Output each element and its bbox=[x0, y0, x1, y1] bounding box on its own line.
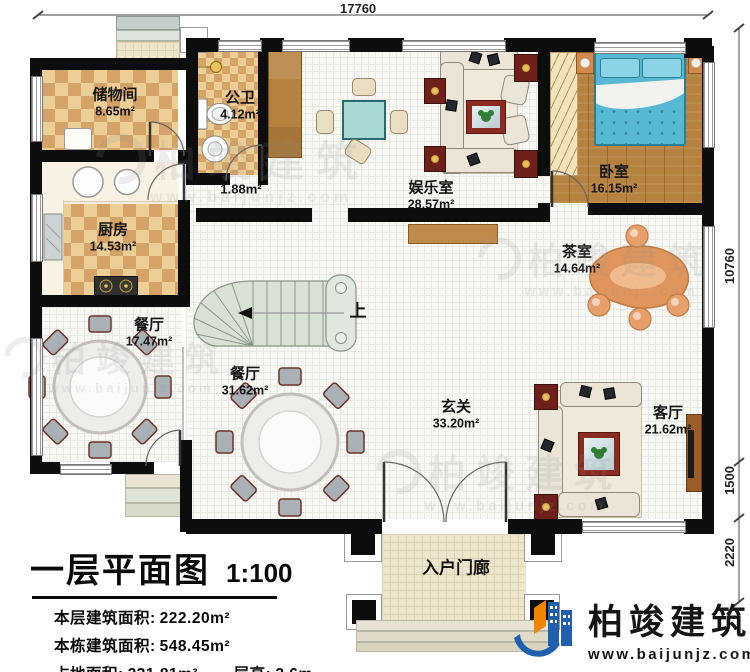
room-name: 客厅 bbox=[645, 406, 692, 423]
wall-segment bbox=[684, 519, 712, 534]
floor-plan-canvas: 储物间 8.65m² 公卫 4.12m² 厨房 14.53m² 娱乐室 28.5… bbox=[0, 0, 750, 672]
room-name: 入户门廊 bbox=[422, 558, 490, 577]
ent-end-table-4 bbox=[514, 150, 538, 178]
room-name: 餐厅 bbox=[222, 367, 269, 384]
window bbox=[31, 76, 43, 142]
wall-segment bbox=[30, 150, 154, 162]
area-total-value: 548.45m² bbox=[160, 638, 230, 655]
sofa-pillow bbox=[603, 387, 616, 400]
company-logo-icon bbox=[504, 592, 582, 664]
wall-segment bbox=[504, 38, 596, 52]
window bbox=[31, 338, 43, 456]
room-name: 娱乐室 bbox=[408, 181, 455, 198]
dimension-right-mid: 1500 bbox=[722, 466, 737, 495]
kitchen-counter-left bbox=[42, 200, 64, 296]
window bbox=[31, 194, 43, 262]
stove bbox=[94, 276, 138, 297]
window bbox=[218, 40, 262, 52]
game-chair-north bbox=[352, 78, 376, 96]
room-name: 卧室 bbox=[591, 165, 638, 182]
ent-end-table-3 bbox=[514, 54, 538, 82]
area-total-row: 本栋建筑面积:548.45m² bbox=[54, 634, 313, 656]
stairs-up-label: 上 bbox=[350, 301, 367, 320]
room-label-dining-west: 餐厅 17.47m² bbox=[126, 318, 173, 349]
dimension-top: 17760 bbox=[340, 1, 376, 16]
plan-scale: 1:100 bbox=[226, 558, 293, 588]
room-name: 茶室 bbox=[554, 245, 601, 262]
living-end-table-1 bbox=[534, 384, 558, 410]
porch-column bbox=[531, 531, 555, 555]
room-area: 16.15m² bbox=[591, 181, 638, 195]
room-name: 餐厅 bbox=[126, 318, 173, 335]
floor-height-value: 3.6m bbox=[275, 666, 312, 672]
window bbox=[402, 40, 506, 52]
wall-segment bbox=[186, 519, 382, 534]
exterior-bay-top bbox=[116, 16, 180, 30]
dimension-right-bottom: 2220 bbox=[722, 538, 737, 567]
corridor-area-label: 1.88m² bbox=[220, 183, 261, 198]
ent-end-table-1 bbox=[424, 78, 446, 104]
pillow-left bbox=[600, 58, 640, 78]
living-end-table-2 bbox=[534, 494, 558, 520]
pillow-right bbox=[642, 58, 682, 78]
bed-quilt-dots bbox=[596, 106, 686, 146]
plan-title: 一层平面图 bbox=[30, 552, 210, 590]
wall-segment bbox=[538, 52, 550, 176]
wardrobe bbox=[550, 52, 578, 176]
room-label-storage: 储物间 8.65m² bbox=[92, 88, 137, 119]
room-area: 33.20m² bbox=[433, 416, 480, 430]
company-website: www.baijunjz.com bbox=[588, 646, 750, 663]
wall-segment bbox=[588, 203, 712, 215]
area-floor-value: 222.20m² bbox=[160, 610, 230, 627]
window bbox=[60, 464, 112, 475]
area-floor-row: 本层建筑面积:222.20m² bbox=[54, 606, 313, 628]
tv-screen bbox=[688, 430, 694, 478]
room-area: 17.47m² bbox=[126, 334, 173, 348]
company-name: 柏竣建筑 bbox=[588, 594, 750, 645]
wall-segment bbox=[538, 203, 550, 222]
window bbox=[703, 62, 715, 148]
wall-segment bbox=[508, 519, 582, 534]
room-label-bedroom: 卧室 16.15m² bbox=[591, 165, 638, 196]
room-label-entertainment: 娱乐室 28.57m² bbox=[408, 181, 455, 212]
room-area: 21.62m² bbox=[645, 422, 692, 436]
ent-coffee-table-glass bbox=[472, 106, 500, 128]
wall-segment bbox=[260, 38, 284, 52]
porch-column bbox=[351, 531, 375, 555]
area-land-row: 占地面积:231.81m² 层高:3.6m bbox=[54, 662, 313, 672]
area-total-label: 本栋建筑面积: bbox=[54, 638, 156, 655]
room-name: 储物间 bbox=[92, 88, 137, 105]
area-land-label: 占地面积: bbox=[54, 666, 124, 672]
window bbox=[594, 42, 686, 54]
room-name: 玄关 bbox=[433, 400, 480, 417]
sideboard bbox=[408, 224, 498, 244]
title-block: 一层平面图1:100 本层建筑面积:222.20m² 本栋建筑面积:548.45… bbox=[30, 543, 313, 672]
room-label-kitchen: 厨房 14.53m² bbox=[90, 223, 137, 254]
hall-cabinet bbox=[268, 48, 302, 158]
window bbox=[703, 226, 715, 328]
room-area: 4.12m² bbox=[220, 107, 260, 121]
wall-segment bbox=[186, 52, 198, 175]
room-label-dining: 餐厅 31.62m² bbox=[222, 367, 269, 398]
room-name: 公卫 bbox=[220, 91, 260, 108]
area-land-value: 231.81m² bbox=[128, 666, 198, 672]
bed bbox=[594, 52, 686, 146]
window bbox=[282, 40, 350, 52]
room-area: 31.62m² bbox=[222, 383, 269, 397]
living-sofa-north bbox=[560, 382, 642, 407]
company-logo: 柏竣建筑 www.baijunjz.com bbox=[504, 592, 750, 664]
room-label-foyer: 玄关 33.20m² bbox=[433, 400, 480, 431]
wall-segment bbox=[110, 462, 154, 474]
room-label-bathroom: 公卫 4.12m² bbox=[220, 91, 260, 122]
room-name: 厨房 bbox=[90, 223, 137, 240]
exterior-bay-band bbox=[116, 30, 180, 41]
wall-segment bbox=[178, 200, 190, 307]
window bbox=[582, 521, 686, 533]
room-area: 28.57m² bbox=[408, 197, 455, 211]
room-label-porch: 入户门廊 bbox=[422, 558, 490, 577]
kitchen-counter-top bbox=[42, 162, 178, 202]
game-table bbox=[342, 100, 386, 140]
floor-height-label: 层高: bbox=[234, 666, 272, 672]
sofa-pillow bbox=[445, 99, 457, 111]
wall-segment bbox=[348, 38, 404, 52]
room-area: 14.64m² bbox=[554, 261, 601, 275]
wall-segment bbox=[30, 462, 60, 474]
exterior-pad bbox=[116, 41, 180, 59]
nightstand-left bbox=[576, 52, 594, 74]
wall-segment bbox=[30, 58, 190, 70]
room-label-living: 客厅 21.62m² bbox=[645, 406, 692, 437]
dimension-right-main: 10760 bbox=[722, 248, 737, 284]
wall-segment bbox=[196, 208, 312, 222]
room-label-tea: 茶室 14.64m² bbox=[554, 245, 601, 276]
game-chair-east bbox=[390, 110, 408, 134]
room-area: 14.53m² bbox=[90, 239, 137, 253]
wall-segment bbox=[186, 38, 220, 52]
area-floor-label: 本层建筑面积: bbox=[54, 610, 156, 627]
living-sofa-west bbox=[538, 406, 563, 500]
title-underline bbox=[32, 596, 277, 599]
water-heater bbox=[64, 128, 92, 150]
room-area: 8.65m² bbox=[92, 104, 137, 118]
ent-end-table-2 bbox=[424, 146, 446, 172]
wall-segment bbox=[30, 295, 190, 307]
living-coffee-table-glass bbox=[584, 438, 614, 470]
game-chair-west bbox=[316, 110, 334, 134]
